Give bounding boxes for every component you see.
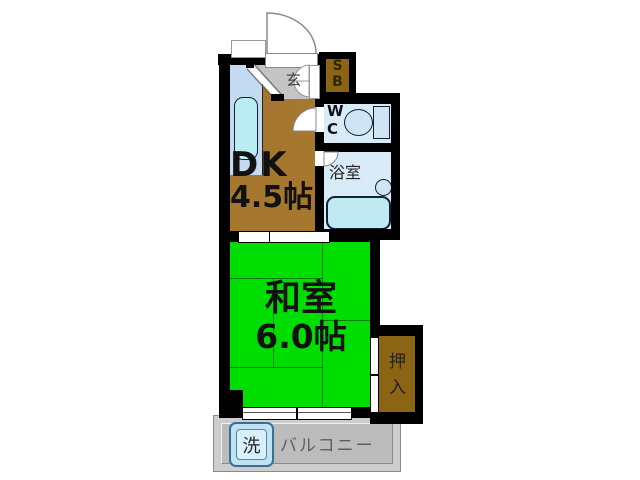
washitsu-room-label: 和室 6.0帖 bbox=[228, 279, 374, 356]
entrance-door-arc bbox=[267, 13, 316, 53]
fusuma-sliding-door bbox=[370, 375, 379, 413]
shoebox-label: S B bbox=[326, 58, 349, 90]
wall-pillar bbox=[219, 390, 243, 418]
wc-label: W C bbox=[327, 102, 344, 138]
dk-size: 4.5帖 bbox=[230, 183, 322, 214]
entrance-label: 玄 bbox=[286, 69, 301, 90]
wall bbox=[391, 93, 400, 240]
bathroom-label: 浴室 bbox=[329, 159, 361, 183]
kitchen-window bbox=[231, 40, 266, 58]
balcony-label: バルコニー bbox=[280, 431, 375, 456]
sliding-door bbox=[238, 231, 330, 243]
dk-name: DK bbox=[230, 148, 322, 183]
bathtub-icon bbox=[326, 196, 391, 230]
washitsu-size: 6.0帖 bbox=[228, 319, 374, 356]
oshiire-label: 押入 bbox=[388, 349, 407, 401]
wc-door-opening bbox=[315, 107, 324, 132]
dk-room-label: DK 4.5帖 bbox=[230, 148, 322, 213]
washer-label: 洗 bbox=[243, 432, 261, 458]
balcony-window bbox=[242, 407, 352, 420]
washitsu-name: 和室 bbox=[228, 279, 374, 319]
toilet-icon bbox=[344, 109, 373, 136]
toilet-tank-icon bbox=[373, 106, 390, 139]
shoebox-doors bbox=[309, 65, 320, 99]
washing-machine-icon: 洗 bbox=[229, 422, 274, 467]
floor-plan: 洗 DK 4.5帖 和室 6.0帖 玄 S B W C 浴室 押入 バルコニー bbox=[0, 0, 640, 480]
faucet-icon bbox=[375, 179, 392, 196]
wall bbox=[219, 231, 239, 242]
wall bbox=[349, 407, 372, 418]
tatami-line bbox=[229, 367, 322, 368]
wall bbox=[315, 143, 400, 152]
